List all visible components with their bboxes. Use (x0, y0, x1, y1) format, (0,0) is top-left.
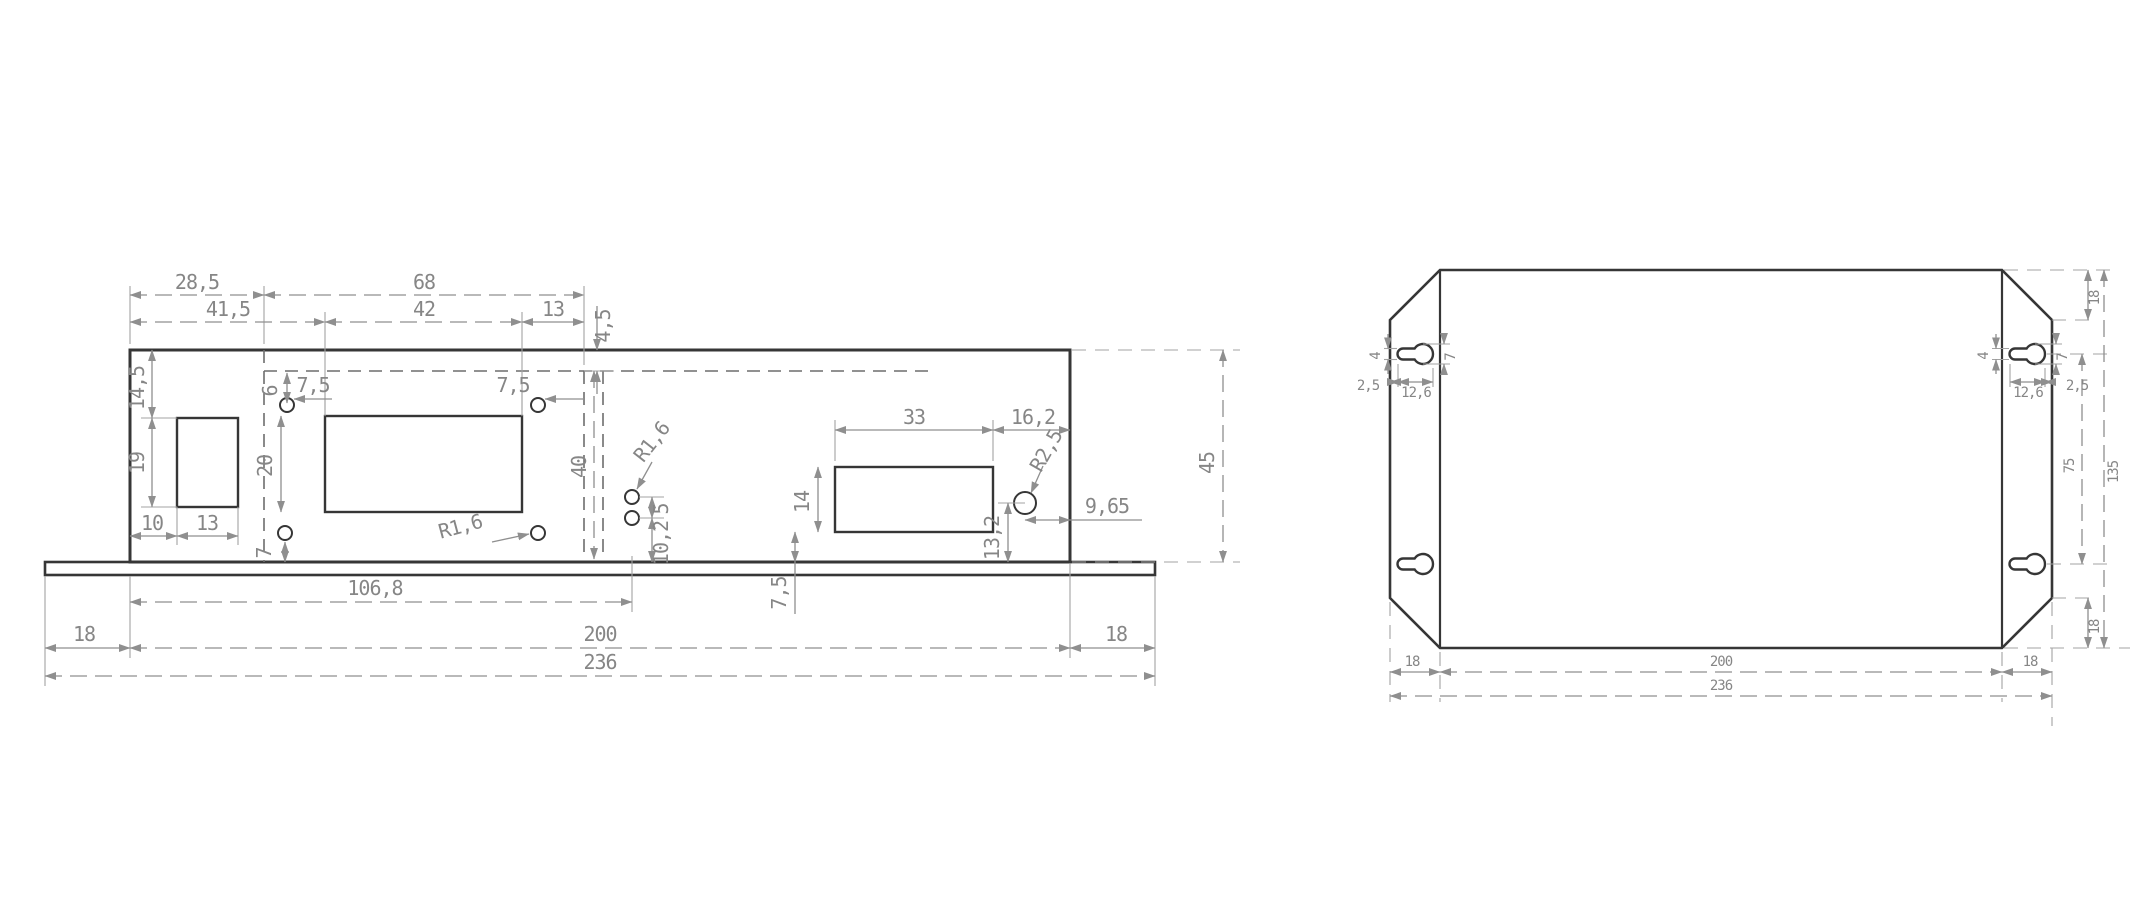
cutout-display-2 (835, 467, 993, 532)
dim-20: 20 (253, 455, 277, 477)
dim-13b: 13 (196, 511, 218, 535)
screw-hole (625, 490, 639, 504)
dim-7: 7 (252, 547, 276, 558)
dim-bottom-18-left: 18 (1405, 654, 1420, 670)
screw-hole (531, 398, 545, 412)
drawing-canvas: 28,5 68 41,5 42 13 4,5 14,5 19 10 13 6 7… (0, 0, 2147, 921)
dim-tr-4: 4 (1976, 352, 1992, 360)
dim-200: 200 (583, 622, 616, 646)
screw-hole (531, 526, 545, 540)
dim-7-5-right: 7,5 (496, 373, 529, 397)
dim-5: 5 (649, 503, 673, 514)
dim-13: 13 (542, 297, 564, 321)
dim-19: 19 (125, 452, 149, 474)
dim-10: 10 (141, 511, 163, 535)
dim-bottom-236: 236 (1710, 678, 1733, 694)
dim-tr-2-5: 2,5 (2066, 378, 2089, 394)
flat-pattern-outline (1390, 270, 2052, 648)
dim-42: 42 (413, 297, 435, 321)
dim-9-65: 9,65 (1085, 494, 1129, 518)
dim-41-5: 41,5 (206, 297, 250, 321)
dim-tl-12-6: 12,6 (1401, 385, 1431, 401)
dim-right-75: 75 (2062, 458, 2078, 473)
top-view: 4 2,5 12,6 7 4 12,6 2,5 7 18 75 135 18 1… (1357, 270, 2130, 726)
dim-right-135: 135 (2106, 460, 2122, 483)
screw-hole (278, 526, 292, 540)
dim-tl-7: 7 (1443, 353, 1459, 361)
dim-4-5: 4,5 (591, 309, 615, 342)
cutout-small-rect (177, 418, 238, 507)
dim-tl-4: 4 (1368, 352, 1384, 360)
dim-18-right: 18 (1105, 622, 1127, 646)
dim-68: 68 (413, 270, 435, 294)
dim-7-5-bottom: 7,5 (767, 576, 791, 609)
dim-right-18-top: 18 (2087, 290, 2103, 305)
dim-236: 236 (583, 650, 616, 674)
dim-13-2: 13,2 (980, 516, 1004, 560)
dim-7-5-left: 7,5 (296, 373, 329, 397)
dim-bottom-200: 200 (1710, 654, 1733, 670)
dim-45: 45 (1195, 452, 1219, 474)
dim-14-5: 14,5 (125, 366, 149, 410)
flange-strip-edge (45, 562, 1155, 575)
dim-18-left: 18 (73, 622, 95, 646)
dim-6: 6 (258, 385, 282, 396)
screw-hole (625, 511, 639, 525)
dim-tr-7: 7 (2055, 353, 2071, 361)
dim-106-8: 106,8 (347, 576, 402, 600)
front-view: 28,5 68 41,5 42 13 4,5 14,5 19 10 13 6 7… (45, 270, 1240, 686)
dim-40: 40 (567, 456, 591, 478)
dim-14h: 14 (790, 490, 814, 513)
cutout-display-1 (325, 416, 522, 512)
dim-33: 33 (903, 405, 925, 429)
dim-tr-12-6: 12,6 (2013, 385, 2043, 401)
dim-28-5: 28,5 (175, 270, 219, 294)
dim-10-2: 10,2 (649, 521, 673, 565)
dim-tl-2-5: 2,5 (1357, 378, 1380, 394)
dim-right-18-bottom: 18 (2087, 619, 2103, 634)
cad-drawing-sheet: 28,5 68 41,5 42 13 4,5 14,5 19 10 13 6 7… (0, 0, 2147, 921)
dim-16-2: 16,2 (1011, 405, 1055, 429)
dim-bottom-18-right: 18 (2023, 654, 2038, 670)
